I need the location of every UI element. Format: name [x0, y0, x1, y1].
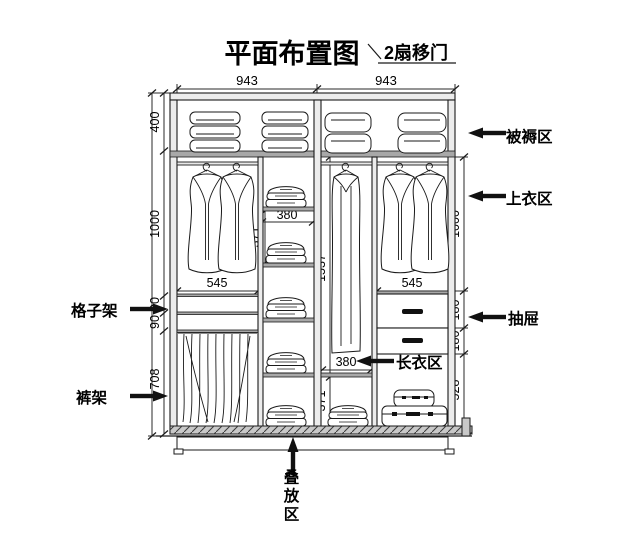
long-coat [332, 163, 361, 353]
drawer-unit [377, 294, 448, 354]
bedding-arrow-icon [468, 128, 506, 139]
dim-left-hang-height: 1000 [148, 210, 162, 238]
title-block: 平面布置图 2扇移门 [225, 39, 457, 69]
folded-clothes-stack [328, 406, 368, 426]
long-clothes-label: 长衣区 [396, 353, 443, 372]
dim-top-width-right: 943 [375, 73, 397, 88]
door-note-label: 2扇移门 [384, 42, 448, 63]
door-note-leader-line [368, 44, 381, 59]
shelf-board-3 [263, 318, 314, 322]
wardrobe-layout-diagram: 平面布置图 2扇移门 943 943 400 1000 90 90 708 [0, 0, 640, 537]
base-foot-left [174, 449, 183, 454]
right-side-panel [448, 100, 455, 434]
drawer-1-handle [402, 309, 423, 314]
shelf-board-1 [263, 207, 314, 211]
left-partition [258, 157, 263, 428]
callout-labels: 被褥区 上衣区 抽屉 长衣区 格子架 裤架 [71, 127, 553, 475]
long-col-shelf-board [321, 373, 372, 377]
grid-shelf-label: 格子架 [71, 301, 118, 320]
folded-quilt-stack [190, 112, 240, 152]
shelf-board-4 [263, 373, 314, 377]
suitcase-storage [382, 390, 447, 426]
rod-right [377, 162, 448, 165]
hanging-pants [183, 334, 250, 423]
shelf-board-2 [263, 263, 314, 267]
folded-clothes-stack [266, 406, 306, 426]
drawer-arrow-icon [468, 312, 506, 323]
folded-clothes-stack [266, 187, 306, 207]
folded-quilt-stack [398, 113, 446, 153]
drawer-label: 抽屉 [508, 309, 539, 328]
bedding-area-label: 被褥区 [506, 127, 553, 146]
dim-bedding-height: 400 [148, 112, 162, 133]
dim-top-width-left: 943 [236, 73, 258, 88]
folded-clothes-stack [266, 298, 306, 318]
top-board [170, 93, 455, 100]
bottom-board [170, 426, 472, 434]
grid-shelf-board-3 [177, 330, 258, 333]
rod-left [177, 162, 258, 165]
folded-clothes-stack [266, 243, 306, 263]
pants-rack-label: 裤架 [76, 388, 108, 407]
right-partition [372, 157, 377, 428]
left-side-panel [170, 100, 177, 434]
folded-quilt-stack [262, 112, 308, 152]
dim-pants-height: 708 [148, 369, 162, 390]
jacket [218, 163, 256, 272]
long-clothes-hanging [332, 163, 361, 353]
pants-rack-arrow-icon [130, 391, 168, 402]
pants-rack-area [178, 333, 257, 423]
tops-hanging-left [188, 163, 256, 272]
folded-quilt-stack [325, 113, 371, 153]
door-track-return [462, 418, 470, 436]
tops-area-label: 上衣区 [506, 189, 553, 208]
stacking-area-label: 叠放区 [282, 469, 298, 525]
diagram-canvas: 平面布置图 2扇移门 943 943 400 1000 90 90 708 [0, 0, 640, 537]
tops-arrow-icon [468, 191, 506, 202]
dim-left-hang-width: 545 [207, 276, 228, 290]
dim-right-hang-width: 545 [402, 276, 423, 290]
page-title: 平面布置图 [225, 39, 360, 69]
drawer-2-handle [402, 338, 423, 343]
folded-clothes-stack [266, 353, 306, 373]
jacket [411, 163, 449, 272]
dim-long-col-width: 380 [336, 355, 357, 369]
grid-shelf-board-1 [177, 294, 258, 297]
grid-shelf-board-2 [177, 312, 258, 315]
base-foot-right [445, 449, 454, 454]
tops-hanging-right [381, 163, 449, 272]
center-partition [314, 100, 321, 428]
dim-grid-cell-2: 90 [148, 315, 162, 329]
